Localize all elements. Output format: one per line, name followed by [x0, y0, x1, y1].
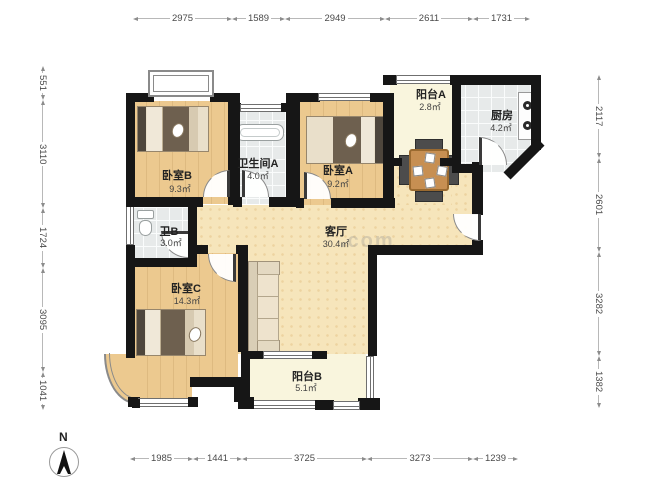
floor-plan: .com — [0, 0, 650, 487]
bedroom-b-bed — [137, 106, 209, 152]
kitchen-area: 4.2㎡ — [490, 123, 512, 133]
bed-pillow — [359, 117, 374, 163]
dim-value: 1589 — [246, 13, 271, 25]
dim-value: 1041 — [37, 378, 48, 403]
wall-step — [368, 245, 483, 255]
bed-duvet — [161, 310, 185, 355]
wall-entry-right-upper — [472, 162, 483, 215]
dim-value: 1239 — [483, 453, 508, 465]
tub-inner — [240, 128, 280, 137]
wall-balcony-b-corner-br — [358, 398, 380, 410]
dim-value: 1382 — [593, 369, 604, 394]
balcony-b-area: 5.1㎡ — [295, 383, 317, 393]
dim-value: 3110 — [37, 142, 48, 166]
sofa-cushion — [257, 296, 279, 319]
dim-value: 1985 — [149, 453, 174, 465]
dim-segment: 1382 — [592, 356, 605, 408]
kitchen-label: 厨房 — [491, 110, 513, 122]
bed-blanket — [189, 107, 198, 151]
wall-balcony-a-stub-left — [388, 158, 402, 166]
dimension-row-top: 2975 1589 2949 2611 1731 — [133, 12, 530, 25]
bedroom-b-bay-window — [148, 70, 214, 97]
wall-bay-cap-top — [126, 350, 135, 358]
dining-table — [409, 149, 449, 191]
dim-segment: 3273 — [367, 452, 473, 465]
window-bedroom-a — [318, 93, 372, 101]
window-bathroom-a — [240, 104, 282, 112]
bed-headboard — [138, 107, 146, 151]
wall-bedroom-a-bottom-right — [331, 198, 395, 208]
dim-value: 551 — [37, 73, 48, 93]
balcony-a-label: 阳台A — [416, 89, 446, 101]
dining-chair-south — [415, 191, 443, 202]
bedroom-a-bed — [306, 116, 386, 164]
dim-segment: 1731 — [473, 12, 530, 25]
wall-bedroom-c-step-vert — [234, 377, 242, 402]
bathroom-a-area: 4.0㎡ — [247, 171, 269, 181]
wall-kitchen-top — [450, 75, 540, 85]
dim-segment: 551 — [36, 66, 49, 100]
dim-segment: 1239 — [473, 452, 518, 465]
north-label: N — [59, 430, 68, 444]
wall-living-right — [368, 254, 377, 356]
wall-bedroom-b-bottom — [126, 197, 203, 207]
bedroom-b-area: 9.3㎡ — [169, 184, 191, 194]
window-balcony-b-bottom-1 — [252, 400, 316, 409]
compass-needle-notch — [60, 466, 68, 474]
bedroom-a-area: 9.2㎡ — [327, 179, 349, 189]
wall-balcony-b-left — [241, 352, 250, 402]
bedroom-b-label: 卧室B — [162, 170, 192, 182]
bed-pillow — [147, 107, 163, 151]
bathroom-b-toilet-tank — [137, 210, 154, 219]
dim-value: 2949 — [322, 13, 347, 25]
wall-bathroom-a-bottom-left — [233, 197, 242, 207]
wall-left-upper — [126, 93, 135, 205]
dimension-column-right: 2117 2601 3282 1382 — [592, 75, 605, 408]
window-balcony-b-bottom-2 — [333, 401, 360, 410]
dim-value: 2601 — [593, 192, 604, 217]
dim-segment: 1985 — [130, 452, 193, 465]
wall-balcony-a-stub-right — [440, 158, 452, 166]
window-bedroom-c-bottom — [138, 398, 190, 407]
wall-bathrooma-bedrooma-divider — [286, 93, 300, 205]
dim-segment: 2949 — [285, 12, 385, 25]
table-plate — [424, 152, 435, 163]
dim-value: 1731 — [489, 13, 514, 25]
bed-headboard — [137, 310, 145, 355]
dim-value: 3273 — [407, 453, 432, 465]
wall-balcony-b-top-stub-right — [312, 351, 327, 359]
wall-bedroom-c-top-stub-left — [196, 245, 208, 254]
bathroom-b-toilet-bowl — [139, 220, 152, 236]
living-room-sofa — [248, 261, 279, 353]
table-plate — [436, 165, 448, 177]
dim-segment: 2601 — [592, 158, 605, 252]
bedroom-c-bed — [136, 309, 206, 356]
dimension-column-left: 551 3110 1724 3095 1041 — [36, 66, 49, 410]
bay-window-glass — [109, 353, 137, 399]
bedroom-c-area: 14.3㎡ — [174, 296, 201, 306]
wall-bedroom-c-bottom-stub-right — [188, 397, 198, 407]
window-balcony-a — [396, 75, 452, 84]
dim-value: 1724 — [37, 225, 48, 250]
living-room-label: 客厅 — [325, 226, 347, 238]
bathroom-b-label: 卫B — [160, 226, 179, 238]
dim-segment: 1589 — [232, 12, 285, 25]
window-balcony-b-right — [366, 356, 374, 402]
window-balcony-b-top — [263, 351, 313, 359]
wall-bedroom-a-top-left — [296, 93, 320, 102]
dim-segment: 3110 — [36, 100, 49, 208]
bathroom-b-area: 3.0㎡ — [160, 238, 182, 248]
wall-bathroom-b-right — [188, 207, 197, 267]
balcony-a-area: 2.8㎡ — [419, 102, 441, 112]
bed-pillow — [146, 310, 161, 355]
dim-segment: 2975 — [133, 12, 232, 25]
dim-segment: 2117 — [592, 75, 605, 158]
dim-value: 3282 — [593, 291, 604, 316]
sofa-arm-top — [257, 261, 280, 275]
dim-value: 2117 — [593, 104, 604, 128]
dim-value: 3725 — [292, 453, 317, 465]
dim-value: 2975 — [170, 13, 195, 25]
bathroom-a-label: 卫生间A — [238, 158, 279, 170]
table-plate — [424, 177, 435, 188]
sofa-cushion — [257, 318, 279, 341]
wall-bedroom-a-bottom-left — [296, 198, 304, 208]
dim-segment: 3095 — [36, 268, 49, 372]
bathroom-a-tub — [236, 124, 284, 141]
stove-burner-center — [526, 104, 529, 107]
dimension-row-bottom: 1985 1441 3725 3273 1239 — [130, 452, 518, 465]
dim-segment: 3282 — [592, 252, 605, 356]
wall-balcony-b-bottom-pillar — [315, 400, 334, 410]
dim-segment: 1041 — [36, 372, 49, 410]
bay-window-glass — [153, 75, 209, 92]
window-left-bathroom-b — [126, 205, 134, 245]
sofa-cushion — [257, 274, 279, 297]
dim-segment: 1441 — [193, 452, 242, 465]
bedroom-c-label: 卧室C — [171, 283, 201, 295]
bedroom-a-label: 卧室A — [323, 165, 353, 177]
stove-burner-center — [526, 124, 529, 127]
table-plate — [413, 166, 424, 177]
dim-segment: 1724 — [36, 208, 49, 268]
wall-bay-cap-bottom — [132, 399, 140, 408]
wall-bedroom-c-right — [238, 245, 248, 352]
dim-segment: 3725 — [242, 452, 367, 465]
wall-bedroom-a-top-right — [370, 93, 384, 102]
wall-kitchen-left — [452, 75, 461, 172]
dim-segment: 2611 — [385, 12, 473, 25]
dim-value: 2611 — [417, 13, 441, 25]
wall-balcony-a-corner — [383, 75, 397, 85]
living-room-area: 30.4㎡ — [323, 239, 350, 249]
wall-bedroom-a-right — [383, 93, 394, 207]
dim-value: 1441 — [205, 453, 230, 465]
wall-bathroom-b-bottom — [126, 258, 196, 267]
balcony-b-label: 阳台B — [292, 371, 322, 383]
wall-balcony-b-top-stub-left — [241, 351, 263, 359]
dim-value: 3095 — [37, 307, 48, 332]
